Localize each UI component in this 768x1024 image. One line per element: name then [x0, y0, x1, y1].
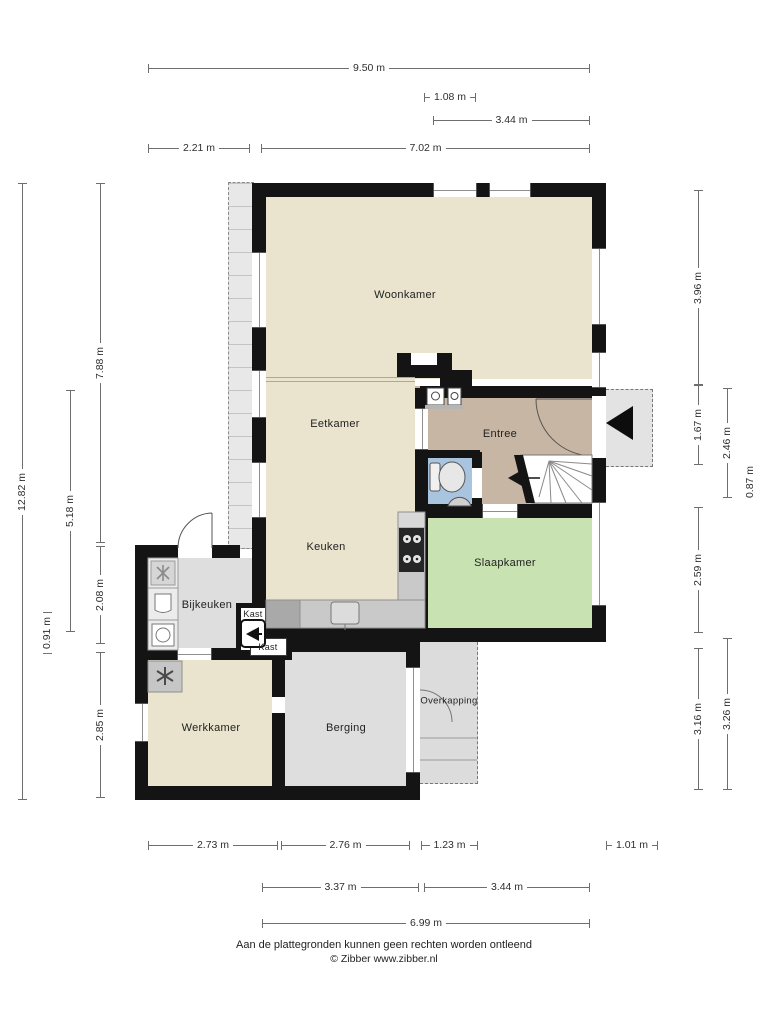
dim-label: 1.23 m [429, 839, 469, 851]
dim-left-788: 7.88 m [92, 183, 108, 543]
window [592, 502, 606, 606]
wall [592, 183, 606, 248]
wall [252, 418, 266, 462]
dim-label: 3.37 m [320, 881, 360, 893]
wall [252, 183, 266, 252]
window [592, 352, 606, 388]
wall [135, 648, 177, 660]
dim-label: 2.46 m [721, 423, 733, 463]
room-slaapkamer [428, 518, 592, 628]
dim-right-246: 2.46 m [719, 388, 735, 498]
floorplan-page: Woonkamer Eetkamer Keuken Entree Slaapka… [0, 0, 768, 1024]
dim-label: 2.85 m [94, 705, 106, 745]
werkkamer-door-opening [177, 648, 212, 660]
dim-label: 1.08 m [430, 91, 470, 103]
dim-label: 9.50 m [349, 62, 389, 74]
wall [415, 450, 428, 628]
front-door-opening [592, 396, 606, 458]
label-kast1: Kast [242, 609, 263, 619]
bijkeuken-door-opening [178, 545, 212, 558]
dim-label: 7.02 m [405, 142, 445, 154]
dim-label: 7.88 m [94, 343, 106, 383]
toilet-door-opening [472, 468, 482, 498]
window [489, 183, 531, 197]
label-slaapkamer: Slaapkamer [474, 557, 536, 569]
dim-label: 2.21 m [179, 142, 219, 154]
dim-bottom-276: 2.76 m [281, 837, 410, 853]
dim-right-087: 0.87 m [742, 465, 758, 498]
window [592, 248, 606, 325]
wall [285, 628, 406, 652]
dim-top-702: 7.02 m [261, 140, 590, 156]
dim-label: 0.91 m [41, 613, 53, 653]
werkkamer-berging-opening [272, 697, 285, 713]
wall [252, 183, 433, 197]
passage-eetkamer-entree [415, 408, 428, 450]
dim-label: 3.26 m [721, 694, 733, 734]
chimney [440, 370, 472, 398]
dim-label: 3.44 m [491, 114, 531, 126]
dim-left-285: 2.85 m [92, 652, 108, 798]
dim-bottom-273: 2.73 m [148, 837, 278, 853]
wall [252, 328, 266, 370]
berging-door-opening [406, 667, 420, 773]
wall [415, 450, 480, 458]
chimney-notch [411, 353, 437, 365]
wall [272, 660, 285, 697]
window [252, 252, 266, 328]
window [433, 183, 477, 197]
label-bijkeuken: Bijkeuken [182, 599, 232, 611]
dim-label: 2.73 m [193, 839, 233, 851]
dim-left-518: 5.18 m [62, 390, 78, 632]
dim-label: 1.01 m [612, 839, 652, 851]
dim-label: 3.44 m [487, 881, 527, 893]
room-overkapping [420, 642, 478, 784]
room-toilet [428, 458, 472, 506]
wall [135, 545, 148, 703]
label-keuken: Keuken [306, 541, 345, 553]
label-overkapping: Overkapping [420, 696, 477, 707]
dim-bottom-344: 3.44 m [424, 879, 590, 895]
dim-left-1282: 12.82 m [14, 183, 30, 800]
slaapkamer-door-opening [482, 504, 518, 518]
dim-bottom-101: 1.01 m [606, 837, 658, 853]
dim-bottom-337: 3.37 m [262, 879, 419, 895]
label-berging: Berging [326, 722, 366, 734]
dim-right-316: 3.16 m [690, 648, 706, 790]
dim-label: 2.08 m [94, 575, 106, 615]
dim-left-208: 2.08 m [92, 546, 108, 644]
wall [592, 325, 606, 352]
wall [592, 458, 606, 502]
dim-right-396: 3.96 m [690, 190, 706, 385]
window [252, 462, 266, 518]
footer-copyright: © Zibber www.zibber.nl [0, 953, 768, 965]
wall [272, 713, 285, 788]
dim-label: 6.99 m [406, 917, 446, 929]
label-werkkamer: Werkkamer [182, 722, 241, 734]
wall [212, 545, 240, 558]
dim-label: 12.82 m [16, 469, 28, 515]
wall [406, 628, 420, 667]
dim-top-344: 3.44 m [433, 112, 590, 128]
dim-top-221: 2.21 m [148, 140, 250, 156]
window [252, 370, 266, 418]
terrace-strip [228, 182, 254, 549]
room-woonkamer [266, 197, 592, 379]
room-divider-line [266, 377, 415, 382]
label-eetkamer: Eetkamer [310, 418, 359, 430]
dim-left-091: 0.91 m [39, 612, 55, 654]
footer-disclaimer: Aan de plattegronden kunnen geen rechten… [0, 939, 768, 951]
dim-label: 3.96 m [692, 267, 704, 307]
label-woonkamer: Woonkamer [374, 289, 436, 301]
label-entree: Entree [483, 428, 517, 440]
wall [477, 183, 489, 197]
dim-right-259: 2.59 m [690, 507, 706, 633]
room-berging [285, 652, 406, 786]
dim-label: 5.18 m [64, 491, 76, 531]
wall [252, 518, 266, 610]
dim-bottom-699: 6.99 m [262, 915, 590, 931]
dim-label: 3.16 m [692, 699, 704, 739]
dim-top-108: 1.08 m [424, 89, 476, 105]
wall [472, 452, 482, 468]
wall [406, 773, 420, 800]
dim-right-326: 3.26 m [719, 638, 735, 790]
dim-label: 1.67 m [692, 405, 704, 445]
label-kast2: Kast [258, 642, 277, 652]
dim-label: 0.87 m [744, 461, 756, 501]
dim-label: 2.76 m [325, 839, 365, 851]
window [135, 703, 148, 742]
entrance-platform [606, 389, 653, 467]
dim-top-950: 9.50 m [148, 60, 590, 76]
dim-bottom-123: 1.23 m [421, 837, 478, 853]
room-eetkamer-keuken [266, 379, 415, 628]
dim-label: 2.59 m [692, 550, 704, 590]
bijkeuken-door-swing [178, 513, 212, 548]
wall [135, 786, 420, 800]
dim-right-167: 1.67 m [690, 385, 706, 465]
wall [592, 388, 606, 396]
